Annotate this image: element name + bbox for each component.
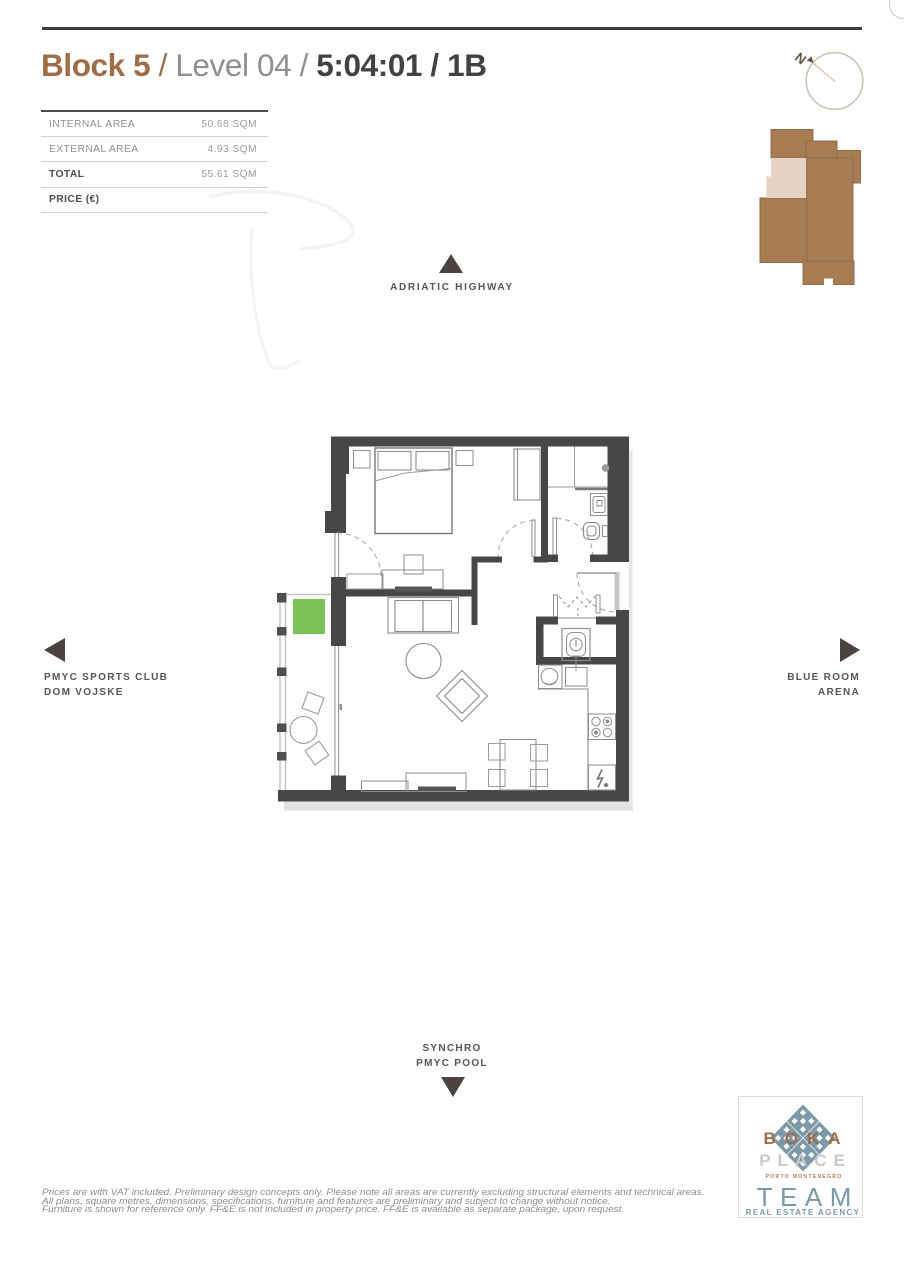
svg-text:N: N — [792, 50, 809, 68]
